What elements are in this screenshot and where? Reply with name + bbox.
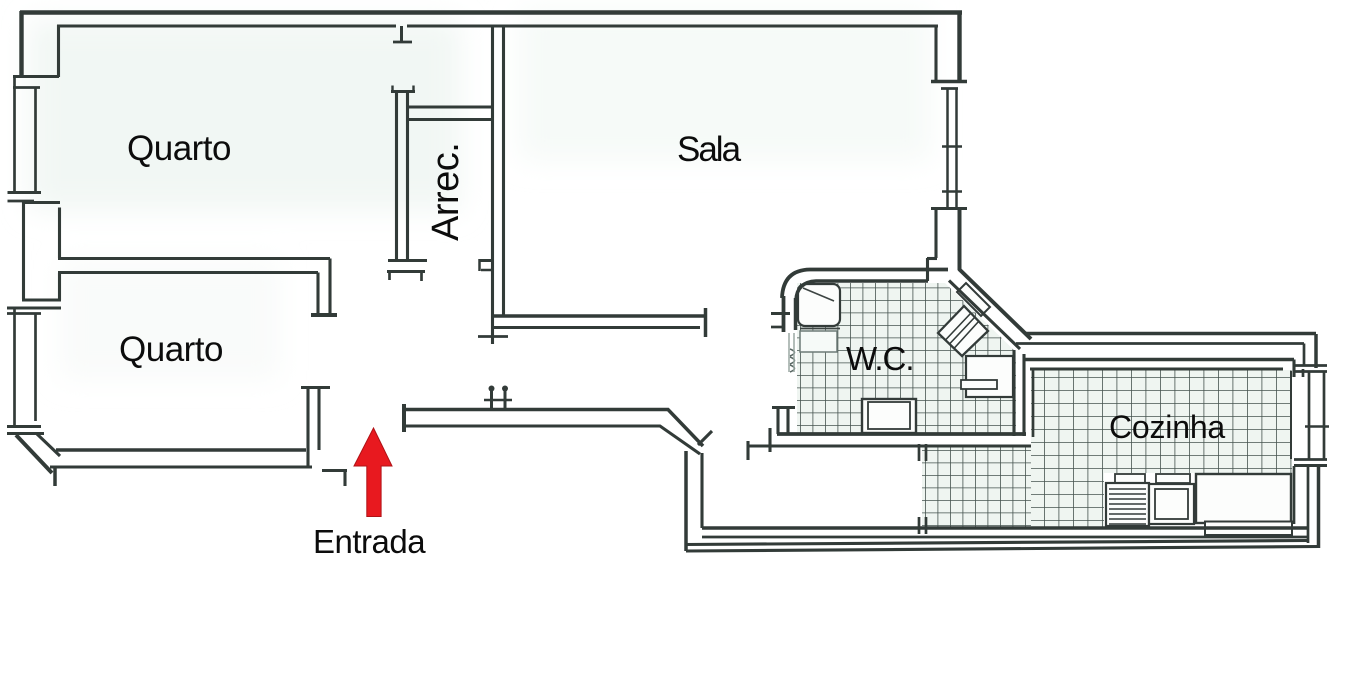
svg-text:Quarto: Quarto — [119, 330, 223, 369]
svg-text:W.C.: W.C. — [846, 340, 914, 377]
svg-text:Quarto: Quarto — [127, 129, 231, 168]
svg-text:Cozinha: Cozinha — [1109, 409, 1225, 445]
svg-text:Entrada: Entrada — [313, 523, 426, 560]
svg-text:Sala: Sala — [677, 130, 742, 169]
svg-text:Arrec.: Arrec. — [425, 143, 467, 241]
